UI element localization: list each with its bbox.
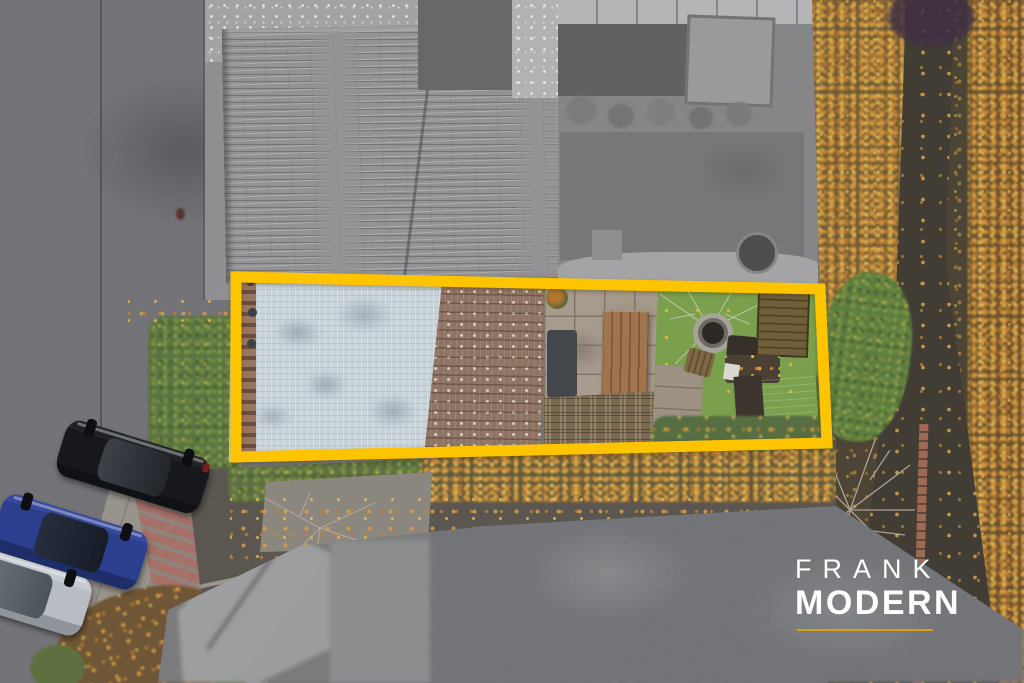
watermark-line2: MODERN — [795, 586, 961, 620]
plot-boundary-polygon — [236, 277, 827, 457]
black-car-taillight — [202, 463, 210, 473]
watermark-line1: FRANK — [795, 556, 961, 583]
watermark-underline — [797, 629, 933, 631]
agency-watermark: FRANK MODERN — [795, 556, 961, 631]
aerial-property-photo: FRANK MODERN — [0, 0, 1024, 683]
black-car-glass — [95, 436, 174, 498]
